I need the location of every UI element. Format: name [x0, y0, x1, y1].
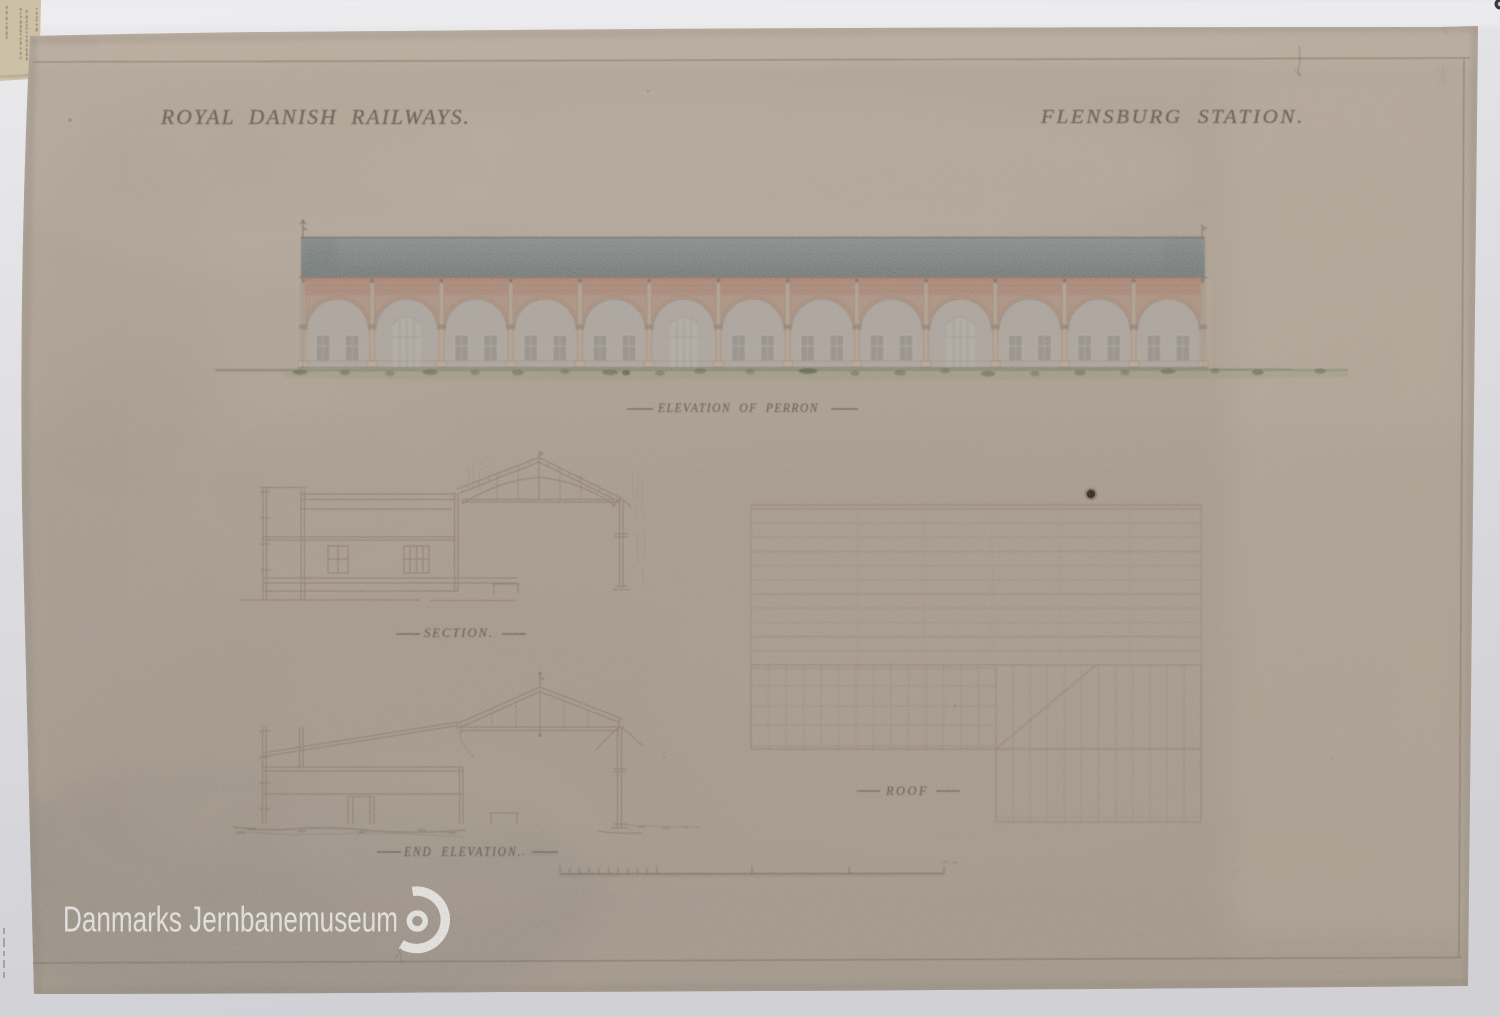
svg-text:Danmarks Jernbanemuseum: Danmarks Jernbanemuseum — [63, 899, 398, 940]
svg-text:ELEVATION OF PERRON: ELEVATION OF PERRON — [657, 401, 819, 415]
svg-text:ROOF: ROOF — [885, 783, 929, 798]
svg-text:END ELEVATION.: END ELEVATION. — [403, 844, 522, 859]
svg-text:ROYAL DANISH RAILWAYS.: ROYAL DANISH RAILWAYS. — [160, 105, 471, 129]
svg-text:SECTION.: SECTION. — [424, 625, 494, 640]
svg-text:FLENSBURG STATION.: FLENSBURG STATION. — [1040, 106, 1305, 128]
